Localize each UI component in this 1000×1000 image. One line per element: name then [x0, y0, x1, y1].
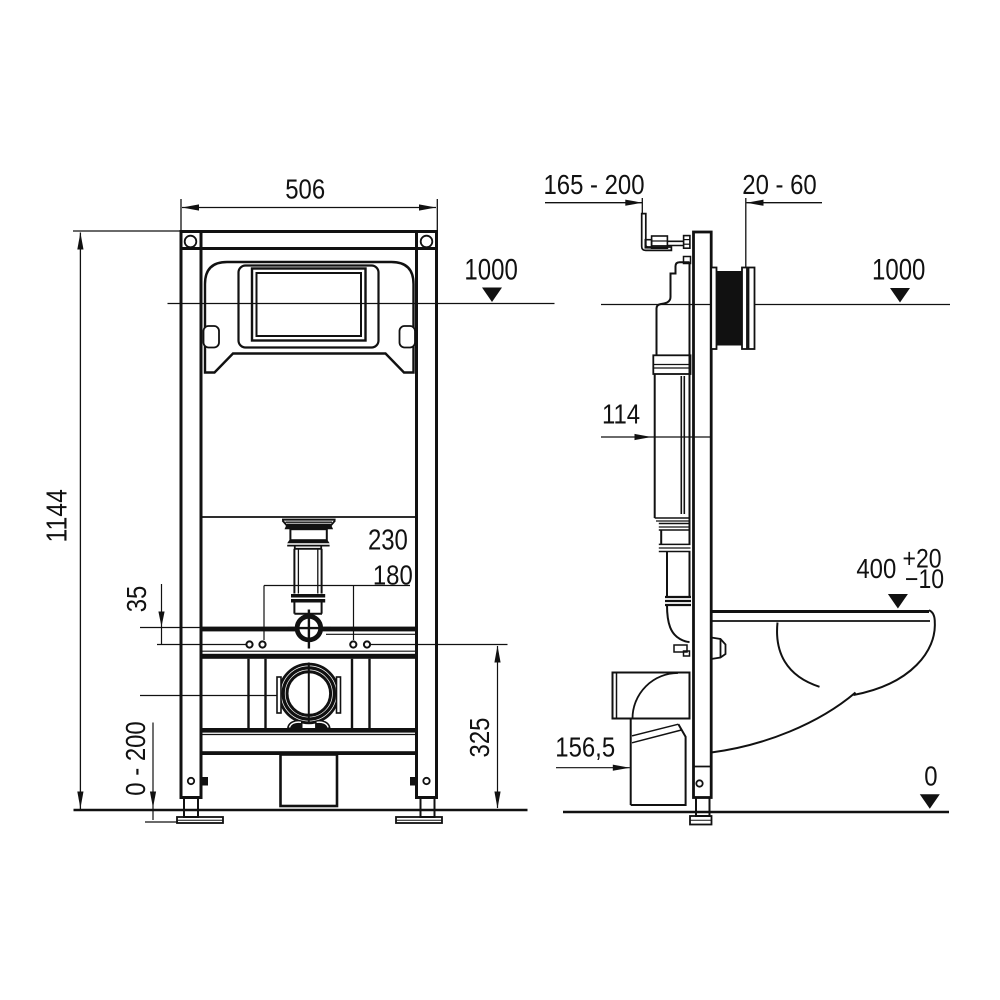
svg-text:114: 114 — [602, 400, 640, 430]
svg-text:230: 230 — [368, 524, 408, 556]
svg-text:180: 180 — [373, 561, 413, 591]
svg-text:20 - 60: 20 - 60 — [742, 171, 816, 201]
svg-text:1144: 1144 — [41, 489, 73, 542]
svg-text:0 - 200: 0 - 200 — [122, 721, 152, 795]
svg-text:1000: 1000 — [872, 252, 925, 286]
svg-text:156,5: 156,5 — [555, 733, 615, 763]
svg-text:506: 506 — [285, 175, 325, 205]
svg-text:400: 400 — [856, 554, 896, 584]
svg-text:35: 35 — [123, 586, 153, 613]
svg-text:1000: 1000 — [464, 252, 517, 286]
svg-text:325: 325 — [466, 718, 496, 758]
svg-text:0: 0 — [924, 762, 937, 792]
svg-text:−10: −10 — [905, 566, 944, 595]
svg-text:165 - 200: 165 - 200 — [543, 171, 644, 201]
